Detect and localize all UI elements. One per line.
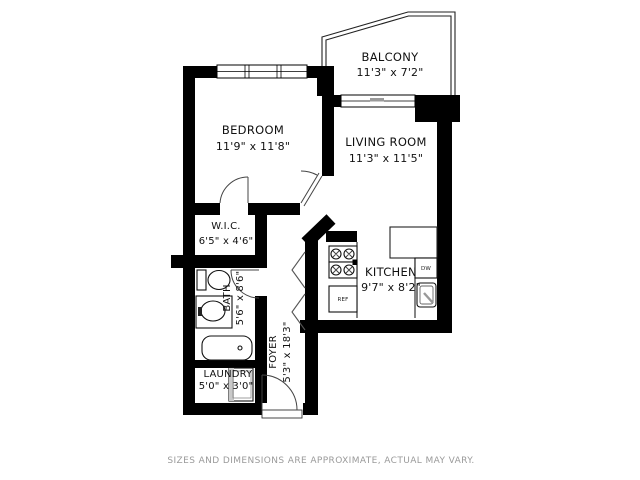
room-dims-kitchen: 9'7" x 8'2" [361, 281, 421, 294]
floor-plan: REF DW BALCONY 11'3" x 7'2" BEDROOM 11'9… [0, 0, 640, 480]
refrigerator-label: REF [337, 297, 348, 303]
room-dims-bath: 5'6" x 8'6" [235, 271, 246, 326]
room-label-laundry: LAUNDRY [204, 369, 254, 380]
room-label-kitchen: KITCHEN [365, 265, 417, 279]
dishwasher-icon: DW [415, 258, 437, 278]
room-dims-balcony: 11'3" x 7'2" [356, 66, 423, 79]
room-label-wic: W.I.C. [211, 221, 240, 232]
bedroom-window [217, 65, 307, 78]
room-label-foyer: FOYER [268, 335, 279, 368]
room-dims-wic: 6'5" x 4'6" [199, 236, 254, 247]
room-label-bath: BATH [222, 284, 233, 311]
disclaimer-text: SIZES AND DIMENSIONS ARE APPROXIMATE, AC… [167, 456, 474, 466]
floor-plan-page: REF DW BALCONY 11'3" x 7'2" BEDROOM 11'9… [0, 0, 640, 480]
room-dims-bedroom: 11'9" x 11'8" [216, 140, 290, 153]
kitchen-counter [390, 227, 437, 258]
bathtub-icon [202, 336, 252, 360]
bedroom-door-icon [301, 171, 322, 206]
wic-door-icon [220, 177, 248, 203]
dishwasher-label: DW [421, 266, 431, 272]
stove-icon [329, 246, 357, 278]
room-dims-laundry: 5'0" x 3'0" [199, 381, 254, 392]
balcony-sliding-door [341, 95, 415, 107]
room-label-living-room: LIVING ROOM [345, 135, 427, 149]
refrigerator-icon: REF [329, 286, 357, 312]
room-label-balcony: BALCONY [362, 50, 420, 64]
room-dims-foyer: 5'3" x 18'3" [282, 321, 293, 382]
foyer-bifold-doors-icon [292, 252, 305, 330]
sliding-door-handle [370, 98, 384, 102]
room-dims-living-room: 11'3" x 11'5" [349, 152, 423, 165]
room-label-bedroom: BEDROOM [222, 123, 284, 137]
